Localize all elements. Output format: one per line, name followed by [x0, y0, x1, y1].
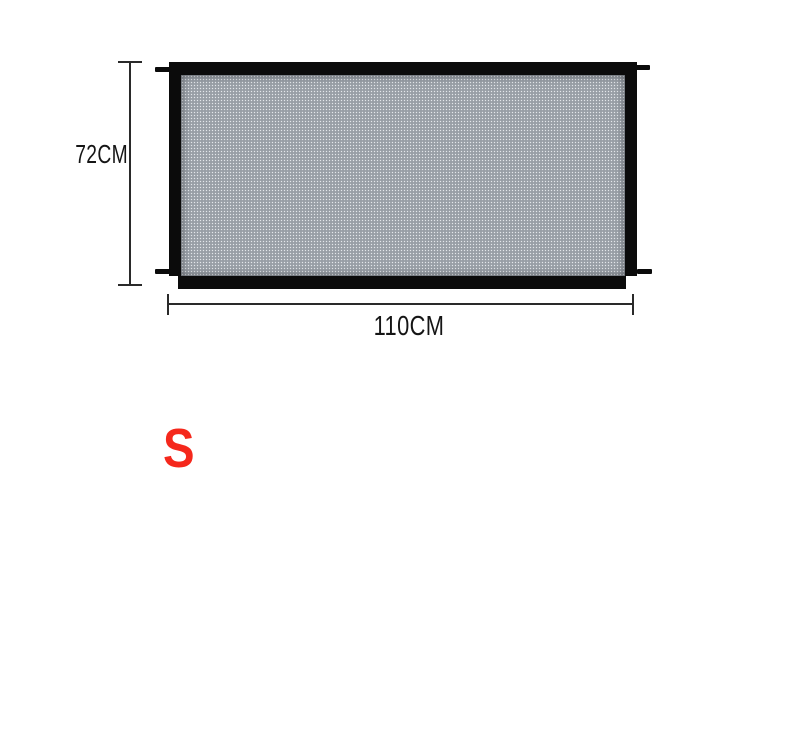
gate-rod-tab-bottom-right [637, 269, 652, 274]
height-dimension-cap-top [118, 61, 142, 63]
product-dimension-diagram: 72CM 110CM S [0, 0, 787, 738]
height-dimension-cap-bottom [118, 284, 142, 286]
gate-left-frame-bar [169, 62, 181, 276]
gate-bottom-frame-bar [178, 276, 626, 289]
gate-top-frame-bar [169, 62, 637, 75]
height-dimension-line [129, 62, 131, 285]
width-dimension-line [168, 303, 634, 305]
gate-right-frame-bar [625, 62, 637, 276]
gate-rod-tab-bottom-left [155, 269, 171, 274]
width-dimension-label: 110CM [358, 312, 459, 340]
gate-mesh-panel [181, 75, 625, 276]
size-label: S [163, 421, 195, 476]
gate-rod-tab-top-right [636, 65, 650, 70]
gate-rod-tab-top-left [155, 67, 171, 72]
width-dimension-cap-right [632, 294, 634, 315]
width-dimension-cap-left [167, 294, 169, 315]
height-dimension-label: 72CM [75, 141, 127, 167]
